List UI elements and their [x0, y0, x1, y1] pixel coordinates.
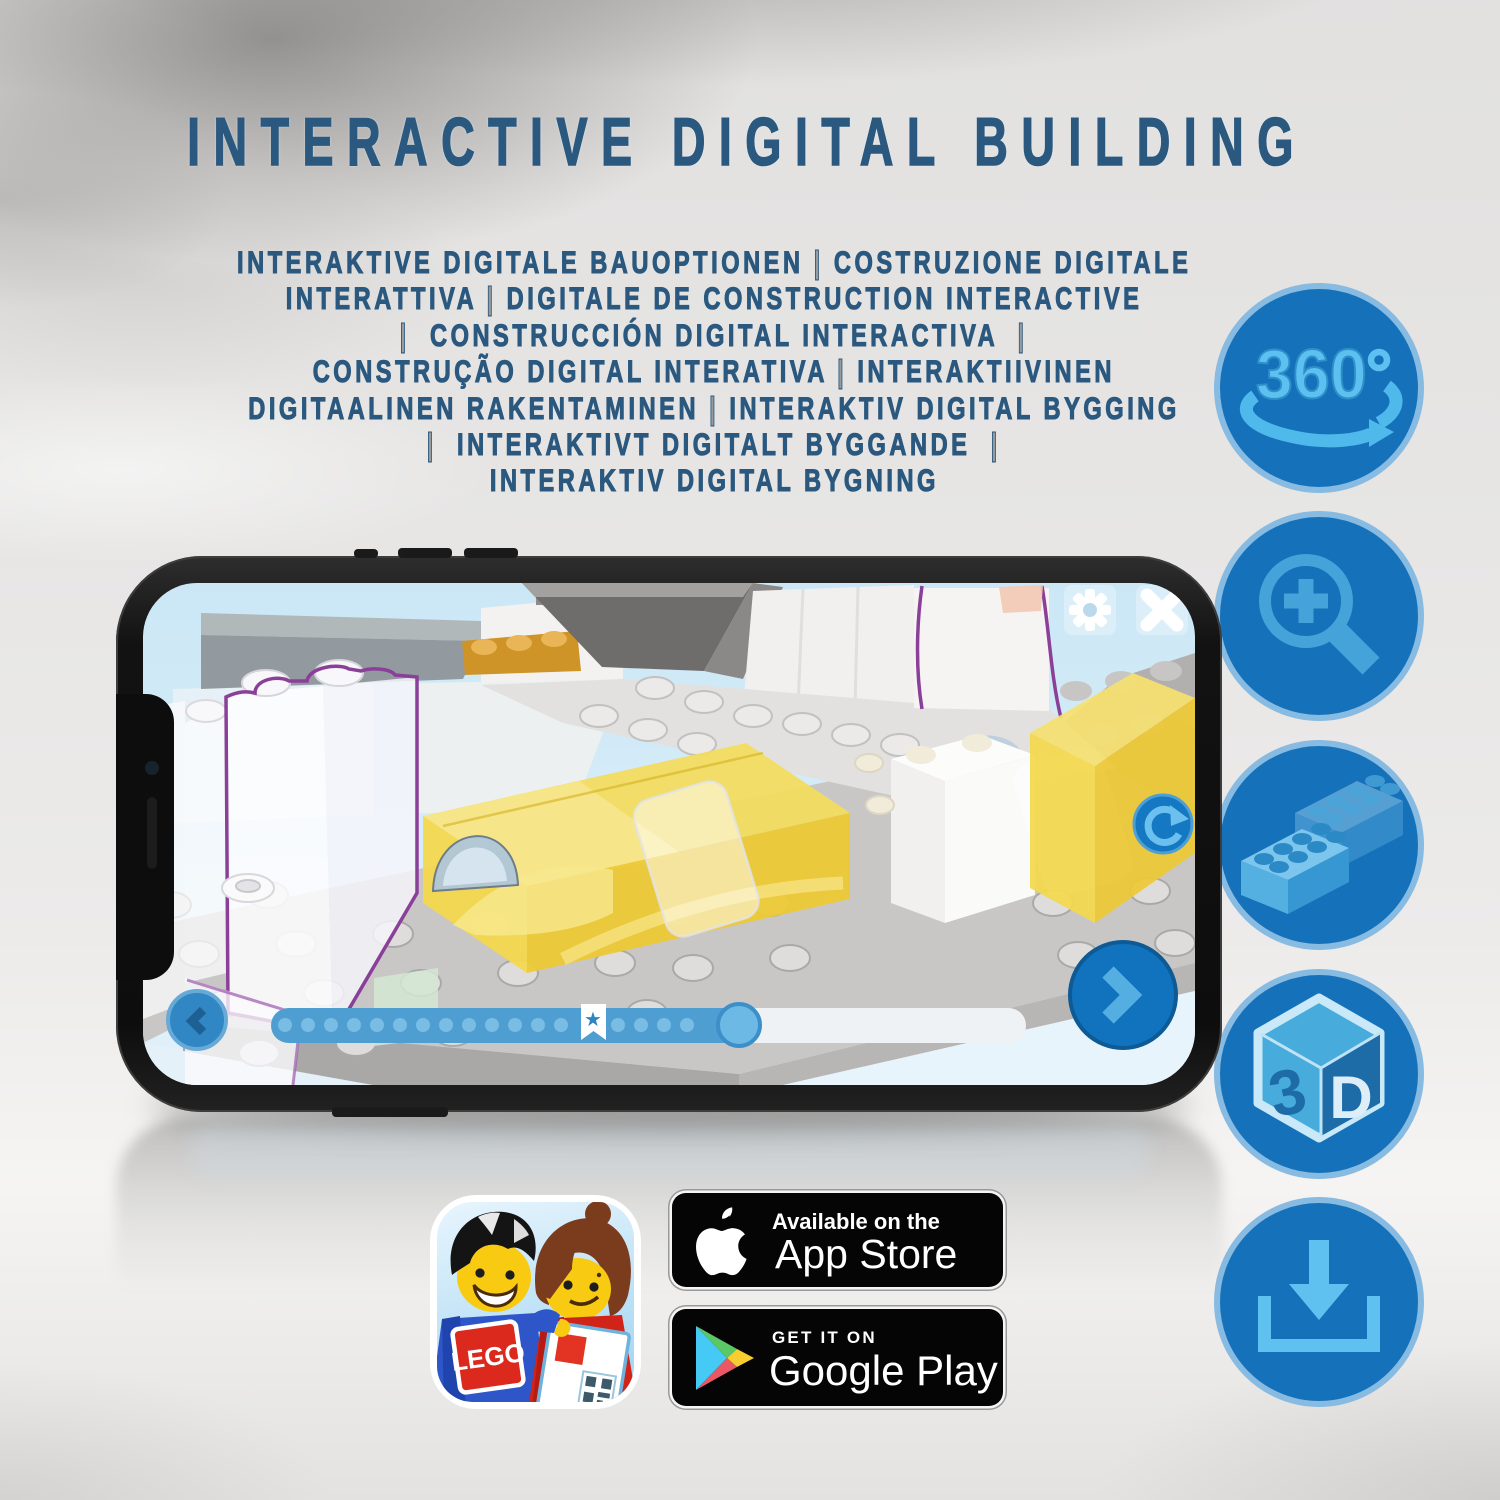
svg-text:★: ★ [584, 1009, 602, 1031]
svg-text:D: D [1329, 1064, 1372, 1131]
svg-text:Google Play: Google Play [769, 1347, 998, 1394]
svg-text:App Store: App Store [775, 1231, 957, 1277]
svg-text:GET IT ON: GET IT ON [772, 1328, 877, 1347]
svg-text:360: 360 [1256, 335, 1367, 413]
